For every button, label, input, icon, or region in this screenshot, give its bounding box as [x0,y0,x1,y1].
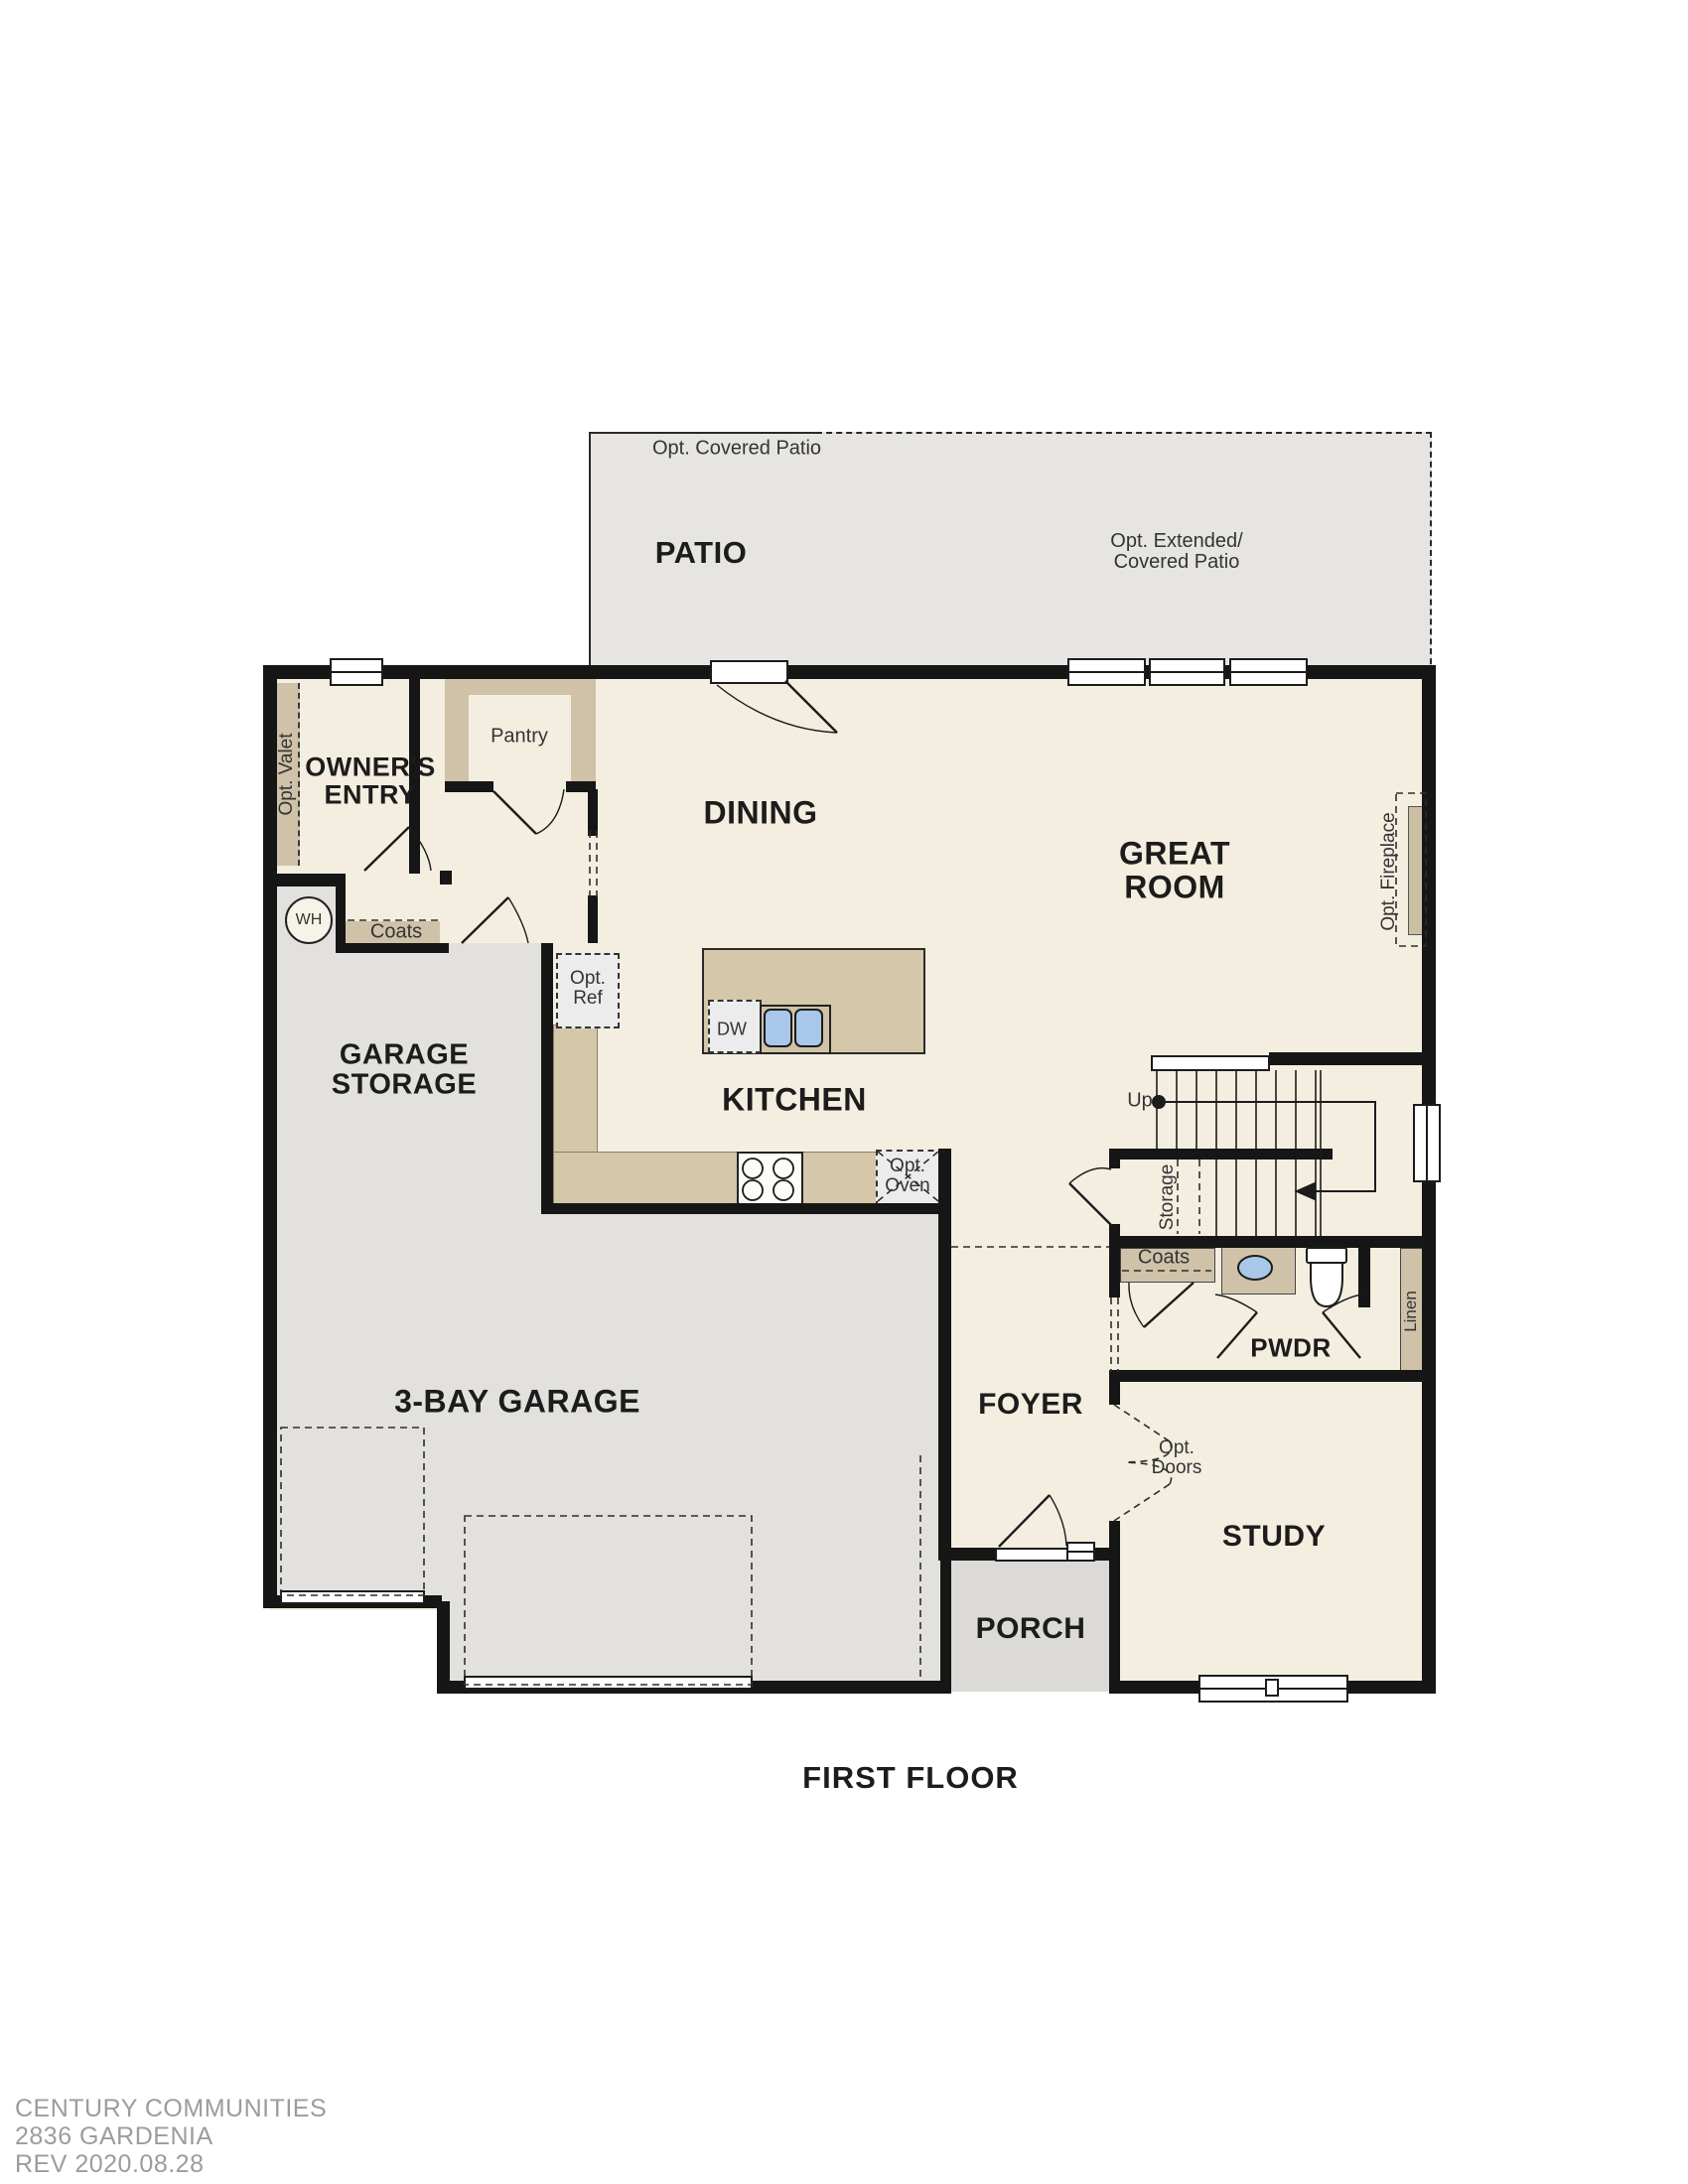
kitchen-label: KITCHEN [722,1082,867,1119]
pwdr-sink [1238,1256,1272,1280]
entry-coats-label: Coats [370,921,422,944]
foyer-label: FOYER [978,1388,1083,1422]
linen-label: Linen [1401,1291,1421,1332]
opt-extended-patio-label: Opt. Extended/ Covered Patio [1110,531,1242,573]
opt-door-leaf-bottom [1114,1484,1170,1521]
hall-coats-door-arc [1129,1283,1144,1327]
burner-4 [774,1180,793,1200]
stairs [1157,1070,1321,1236]
sink-basin-right [795,1010,822,1046]
up-label: Up [1127,1090,1153,1113]
patio-label: PATIO [655,535,748,571]
storage-door-arc [1069,1168,1111,1183]
direction-arrowhead [1297,1183,1315,1199]
garage-door-double [465,1677,752,1689]
storage-door-leaf [1069,1183,1112,1226]
opt-doors-line1: Opt. [1152,1438,1202,1458]
porch-label: PORCH [976,1612,1086,1646]
garage-bay-double-outline [465,1516,752,1685]
patio-door-frame [711,661,787,683]
great-room-label: GREAT ROOM [1119,837,1230,903]
front-door-leaf [999,1495,1050,1547]
dw-label: DW [717,1020,747,1040]
pwdr-label: PWDR [1250,1333,1331,1364]
burner-2 [774,1159,793,1178]
footer-block: CENTURY COMMUNITIES 2836 GARDENIA REV 20… [15,2095,327,2178]
garage-door-single [281,1591,424,1603]
opt-extended-line2: Covered Patio [1110,552,1242,573]
floor-plan-page: Opt. Covered Patio PATIO Opt. Extended/ … [0,0,1688,2184]
opt-covered-patio-label: Opt. Covered Patio [652,438,821,461]
footer-plan: 2836 GARDENIA [15,2122,327,2150]
patio-door-arc [717,685,837,733]
opt-doors-line2: Doors [1152,1458,1202,1478]
opt-oven-line2: Oven [885,1176,929,1196]
opt-extended-line1: Opt. Extended/ [1110,531,1242,552]
footer-revision: REV 2020.08.28 [15,2150,327,2178]
up-start-dot [1153,1096,1165,1108]
owners-entry-line2: ENTRY [305,781,435,809]
front-door-arc [1050,1495,1066,1546]
pantry-door-arc [536,789,564,834]
entry-door-arc [409,827,431,871]
garage-label: 3-BAY GARAGE [394,1384,640,1421]
pantry-door-leaf [493,791,536,834]
plan-title: FIRST FLOOR [802,1760,1019,1796]
kitchen-hall-door-arc [508,897,528,943]
opt-doors-label: Opt. Doors [1152,1438,1202,1478]
opt-fireplace-outline [1396,793,1426,946]
opt-ref-line1: Opt. [570,969,606,989]
opt-door-leaf-top [1114,1405,1170,1441]
great-room-line1: GREAT [1119,837,1230,871]
study-label: STUDY [1222,1520,1326,1554]
garage-storage-line1: GARAGE [332,1040,477,1070]
dining-label: DINING [704,795,818,832]
stair-rail [1152,1056,1269,1070]
owners-entry-line1: OWNER'S [305,753,435,781]
garage-bay-single-outline [281,1428,424,1595]
hall-coats-label: Coats [1138,1247,1190,1270]
owners-entry-label: OWNER'S ENTRY [305,753,435,810]
entry-door-leaf [364,827,409,871]
sink-basin-left [765,1010,791,1046]
toilet-tank [1307,1248,1346,1263]
wh-label: WH [296,911,323,929]
opt-oven-label: Opt. Oven [885,1157,929,1196]
great-room-line2: ROOM [1119,871,1230,904]
pantry-label: Pantry [491,726,548,749]
burner-3 [743,1180,763,1200]
opt-fireplace-label: Opt. Fireplace [1378,812,1400,930]
front-door-sill [996,1549,1067,1561]
hall-coats-door-leaf [1144,1283,1194,1327]
opt-oven-line1: Opt. [885,1157,929,1176]
opt-valet-label: Opt. Valet [276,733,298,815]
garage-storage-line2: STORAGE [332,1070,477,1100]
storage-label: Storage [1157,1164,1179,1231]
footer-company: CENTURY COMMUNITIES [15,2095,327,2122]
toilet-bowl [1311,1263,1342,1306]
opt-ref-label: Opt. Ref [570,969,606,1009]
window-study-mullion [1266,1680,1278,1696]
garage-storage-label: GARAGE STORAGE [332,1040,477,1101]
burner-1 [743,1159,763,1178]
kitchen-hall-door-leaf [462,897,508,943]
opt-ref-line2: Ref [570,989,606,1009]
stair-direction-path [1153,1096,1375,1199]
pwdr-door-left-arc [1215,1295,1257,1312]
